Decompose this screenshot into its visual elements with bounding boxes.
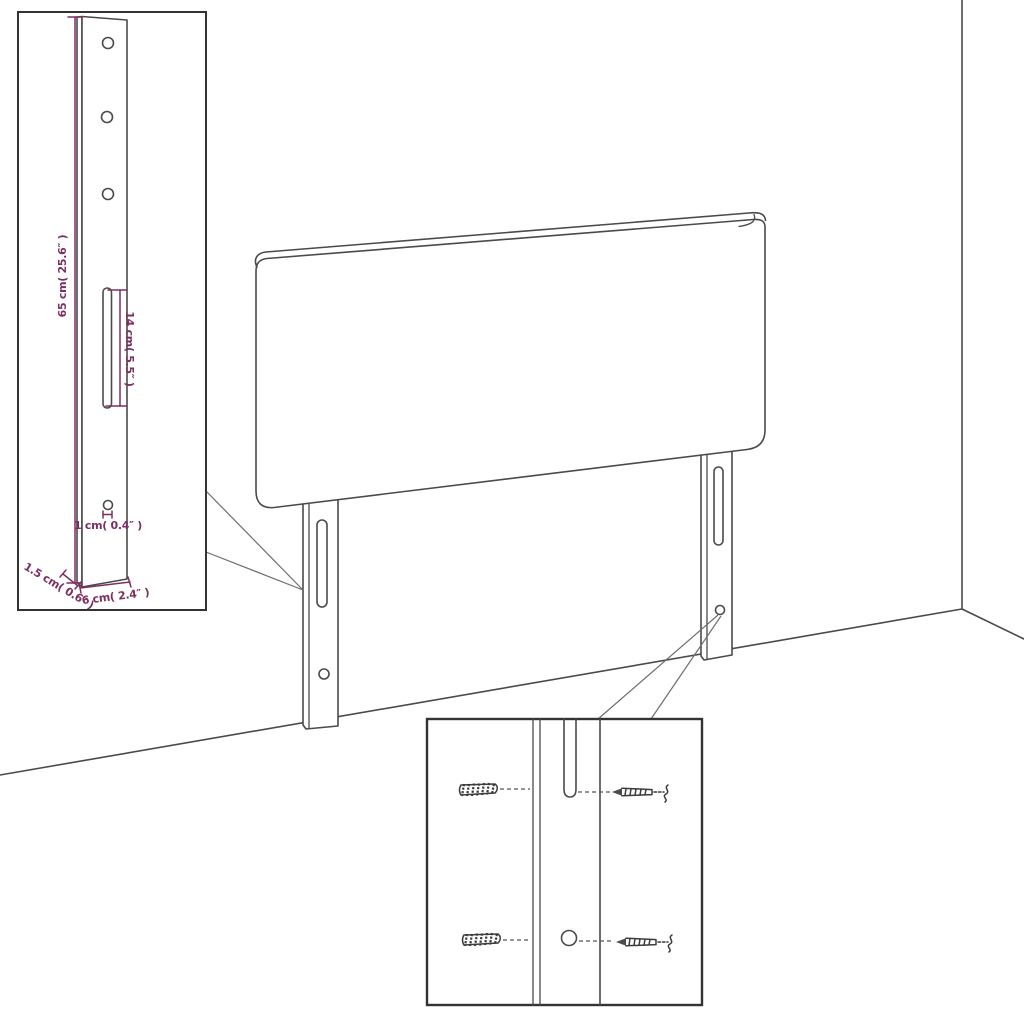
dim-slot-label: 14 cm( 5.5″ ) (123, 311, 136, 387)
inset-hardware-detail (427, 719, 702, 1005)
diagram-canvas: 65 cm( 25.6″ ) 14 cm( 5.5″ ) 1 cm( 0.4″ … (0, 0, 1024, 1024)
left-leg-slot (317, 520, 327, 607)
left-leg-hole (319, 669, 329, 679)
inset-leg-hole-top (103, 38, 114, 49)
right-leg-slot (714, 467, 723, 545)
callout-lines (206, 491, 721, 719)
left-leg (303, 486, 338, 729)
inset-leg-small-hole (104, 501, 113, 510)
right-leg (701, 437, 732, 660)
product-dimension-diagram: 65 cm( 25.6″ ) 14 cm( 5.5″ ) 1 cm( 0.4″ … (0, 0, 1024, 1024)
inset-leg-hole-middle (102, 112, 113, 123)
dim-hole-label: 1 cm( 0.4″ ) (74, 519, 142, 532)
right-leg-hole (716, 606, 725, 615)
headboard-front-face (256, 219, 765, 507)
dim-height-label: 65 cm( 25.6″ ) (56, 234, 69, 317)
headboard-panel (255, 213, 765, 508)
inset-leg-slot (103, 288, 112, 408)
inset-leg-dimensions: 65 cm( 25.6″ ) 14 cm( 5.5″ ) 1 cm( 0.4″ … (18, 12, 206, 612)
inset-leg-hole-lower (103, 189, 114, 200)
